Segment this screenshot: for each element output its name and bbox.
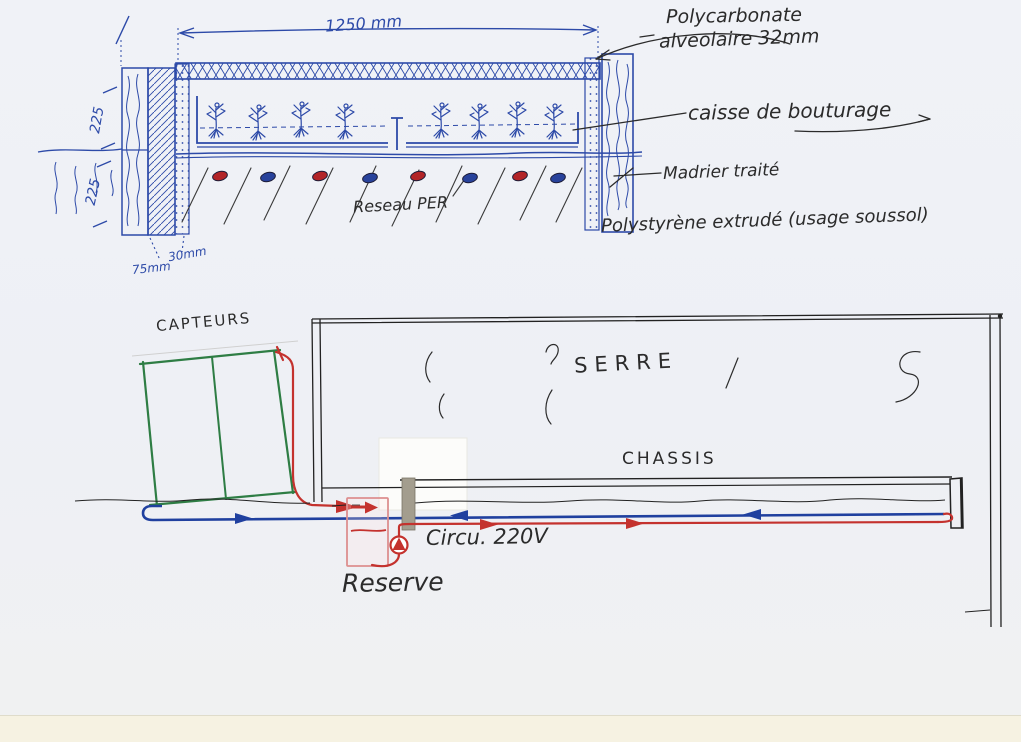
- solar-collector: [140, 350, 295, 506]
- per-pipe-red-dot: [410, 170, 427, 182]
- right-wall: [585, 54, 633, 232]
- polycarbonate-label-line1: Polycarbonate: [666, 4, 802, 28]
- scanned-sketch-page: 1250 mm 225 225 30mm 75mm Polycarbonate …: [0, 0, 1021, 742]
- plant-icon: [336, 104, 354, 139]
- plant-icon: [470, 104, 488, 139]
- reserve-tank: [347, 498, 388, 566]
- per-pipe-red-dot: [512, 170, 529, 182]
- per-pipe-red-dot: [312, 170, 329, 182]
- blue-flow-arrow: [743, 509, 761, 520]
- whiteout-patch: [379, 438, 467, 510]
- cutting-box-label: caisse de bouturage: [688, 97, 892, 125]
- plant-icon: [432, 103, 450, 138]
- coldframe-label: CHASSIS: [622, 449, 717, 469]
- pencil-guide-line: [132, 341, 298, 356]
- plant-icon: [249, 105, 267, 140]
- tank-water-level: [351, 530, 386, 531]
- per-pipe-blue-dot: [362, 172, 379, 184]
- per-pipe-blue-dot: [462, 172, 479, 184]
- per-pipe-dots: [212, 170, 567, 184]
- circulator-label: Circu. 220V: [426, 524, 548, 550]
- plants: [207, 102, 563, 140]
- treated-timber-label: Madrier traité: [663, 160, 780, 184]
- per-pipe-blue-dot: [550, 172, 567, 184]
- return-pipe-blue: [143, 506, 944, 524]
- per-pipe-blue-dot: [260, 171, 277, 183]
- red-flow-arrow: [626, 518, 644, 529]
- blue-flow-arrow: [235, 513, 253, 524]
- plant-icon: [207, 103, 225, 138]
- coldframe-post: [402, 478, 415, 530]
- propagation-trays: [197, 96, 578, 150]
- per-pipe-red-dot: [212, 170, 229, 182]
- plant-icon: [508, 102, 526, 137]
- left-wall: [122, 64, 189, 235]
- plant-icon: [292, 102, 310, 137]
- plant-icon: [545, 104, 563, 139]
- tank-label: Reserve: [342, 567, 444, 598]
- polycarbonate-panel: [176, 63, 600, 79]
- blue-flow-arrow: [450, 510, 468, 521]
